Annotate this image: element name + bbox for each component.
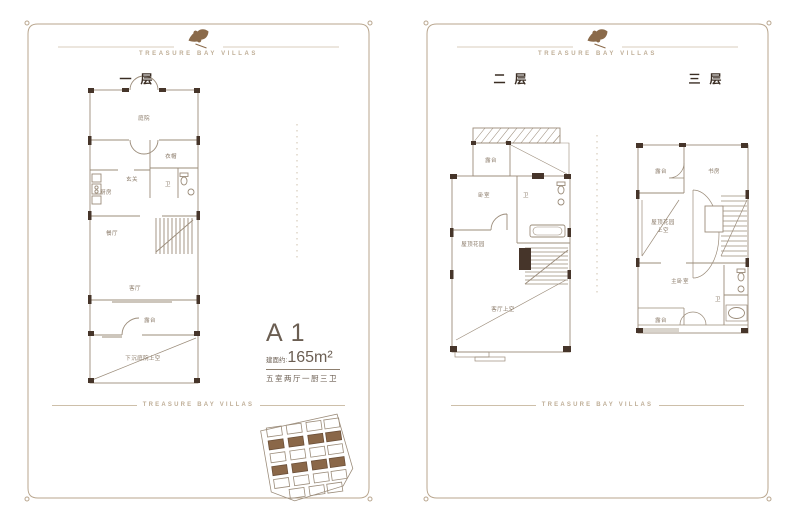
room-label-roof-garden: 屋顶花园: [461, 240, 485, 248]
brand-tagline: TREASURE BAY VILLAS: [421, 51, 774, 57]
brand-tagline: TREASURE BAY VILLAS: [22, 51, 375, 57]
wall-blocks: [636, 143, 749, 333]
footer-ornament-left: TREASURE BAY VILLAS: [52, 402, 345, 408]
floor1-plan: 庭院 衣帽 玄关 厨房 卫 餐厅 客厅 露台 下沉庭院上空: [88, 76, 200, 383]
panel-right-drawing: 露台 卧室 卫 屋顶花园 客厅上空: [421, 18, 774, 504]
floor3-title: 三层: [660, 70, 750, 87]
floor1-title: 一层: [91, 70, 181, 87]
brand-tagline-footer: TREASURE BAY VILLAS: [536, 402, 659, 408]
site-map: [260, 413, 356, 504]
room-label-living: 客厅: [129, 284, 141, 292]
room-label-entry: 玄关: [126, 175, 138, 183]
room-label-living-void: 客厅上空: [491, 305, 515, 313]
floorplan-brochure: 庭院 衣帽 玄关 厨房 卫 餐厅 客厅 露台 下沉庭院上空: [0, 0, 800, 527]
room-label-roof-void-2: 上空: [657, 226, 669, 234]
footer-rule: [52, 405, 137, 406]
unit-info: A1 建面约:165m² 五室两厅一厨三卫: [266, 321, 350, 384]
room-label-terrace2: 露台: [485, 156, 497, 164]
panel-right: 露台 卧室 卫 屋顶花园 客厅上空: [421, 18, 774, 504]
wall-blocks: [88, 88, 200, 383]
room-label-courtyard: 庭院: [138, 114, 150, 122]
leaf-logo-icon: [186, 26, 211, 48]
panel-left: 庭院 衣帽 玄关 厨房 卫 餐厅 客厅 露台 下沉庭院上空: [22, 18, 375, 504]
unit-divider: [266, 369, 340, 370]
footer-ornament-right: TREASURE BAY VILLAS: [451, 402, 744, 408]
room-label-bath3: 卫: [715, 296, 721, 303]
room-label-terrace3-top: 露台: [655, 167, 667, 175]
room-label-bath1: 卫: [165, 181, 171, 188]
room-label-bath2: 卫: [523, 192, 529, 199]
unit-area: 建面约:165m²: [266, 349, 350, 367]
footer-rule: [260, 405, 345, 406]
floor2-plan: 露台 卧室 卫 屋顶花园 客厅上空: [450, 128, 571, 361]
unit-layout-desc: 五室两厅一厨三卫: [266, 373, 350, 384]
room-label-roof-void-1: 屋顶花园: [651, 218, 675, 226]
room-label-study: 书房: [708, 167, 720, 175]
room-label-bedroom: 卧室: [478, 191, 490, 199]
unit-name: A1: [266, 321, 350, 346]
unit-area-label: 建面约:: [266, 357, 287, 364]
brand-tagline-footer: TREASURE BAY VILLAS: [137, 402, 260, 408]
leaf-logo-icon: [585, 26, 610, 48]
room-label-sunken-void: 下沉庭院上空: [125, 354, 161, 362]
floor3-plan: 露台 书房 屋顶花园 上空 主卧室 卫 露台: [636, 143, 749, 333]
floor2-title: 二层: [465, 70, 555, 87]
footer-rule: [451, 405, 536, 406]
room-label-terrace1: 露台: [144, 316, 156, 324]
room-label-terrace3-bottom: 露台: [655, 316, 667, 324]
footer-rule: [659, 405, 744, 406]
room-label-dining: 餐厅: [106, 229, 118, 237]
room-label-cloak: 衣帽: [165, 152, 177, 160]
unit-area-value: 165m²: [287, 349, 332, 366]
room-label-kitchen: 厨房: [100, 188, 112, 196]
panel-left-drawing: 庭院 衣帽 玄关 厨房 卫 餐厅 客厅 露台 下沉庭院上空: [22, 18, 375, 504]
room-label-master-bedroom: 主卧室: [671, 277, 689, 285]
